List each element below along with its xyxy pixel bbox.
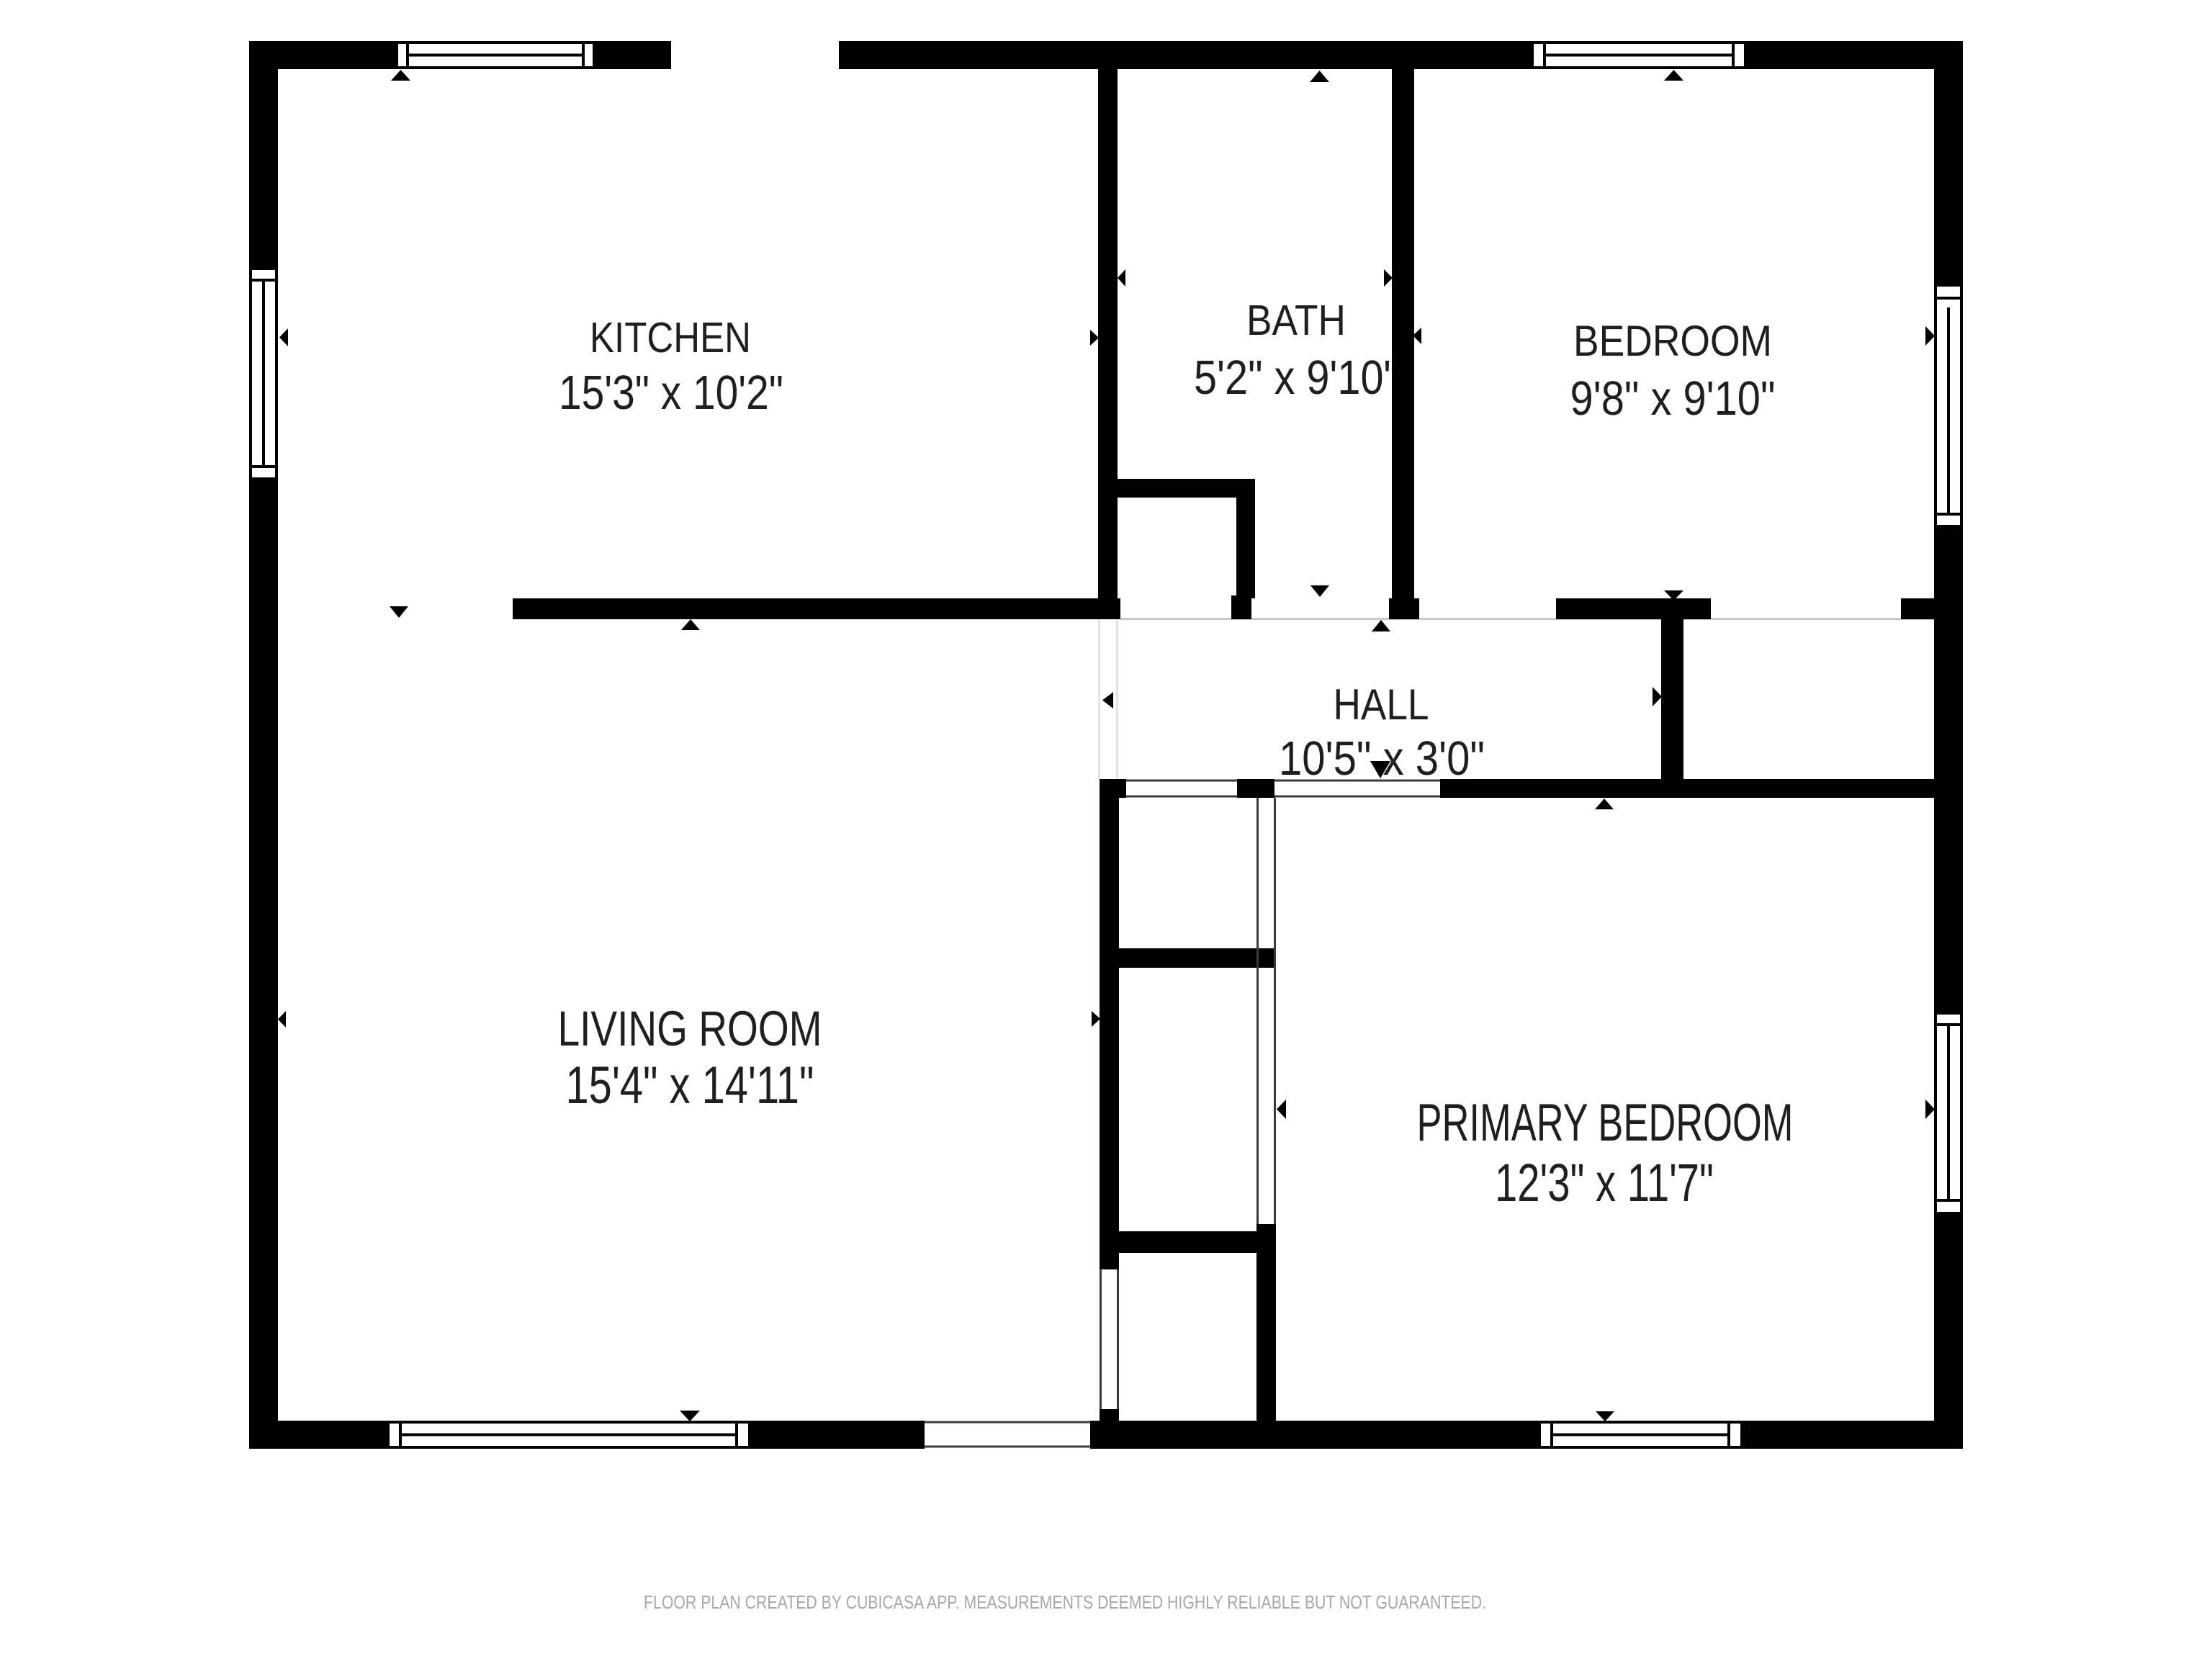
svg-text:5'2" x 9'10": 5'2" x 9'10" xyxy=(1194,351,1398,405)
svg-text:10'5" x 3'0": 10'5" x 3'0" xyxy=(1279,732,1485,786)
svg-text:BATH: BATH xyxy=(1246,297,1346,344)
svg-text:9'8" x 9'10": 9'8" x 9'10" xyxy=(1570,372,1776,426)
svg-text:KITCHEN: KITCHEN xyxy=(590,314,751,361)
svg-text:BEDROOM: BEDROOM xyxy=(1573,317,1772,365)
svg-text:15'3" x 10'2": 15'3" x 10'2" xyxy=(559,366,783,420)
svg-text:HALL: HALL xyxy=(1334,680,1429,729)
svg-text:LIVING ROOM: LIVING ROOM xyxy=(558,1001,822,1056)
svg-text:12'3" x 11'7": 12'3" x 11'7" xyxy=(1495,1153,1714,1213)
svg-text:PRIMARY BEDROOM: PRIMARY BEDROOM xyxy=(1417,1094,1794,1152)
svg-text:FLOOR PLAN CREATED BY CUBICASA: FLOOR PLAN CREATED BY CUBICASA APP. MEAS… xyxy=(644,1591,1486,1613)
svg-text:15'4" x 14'11": 15'4" x 14'11" xyxy=(566,1056,814,1115)
